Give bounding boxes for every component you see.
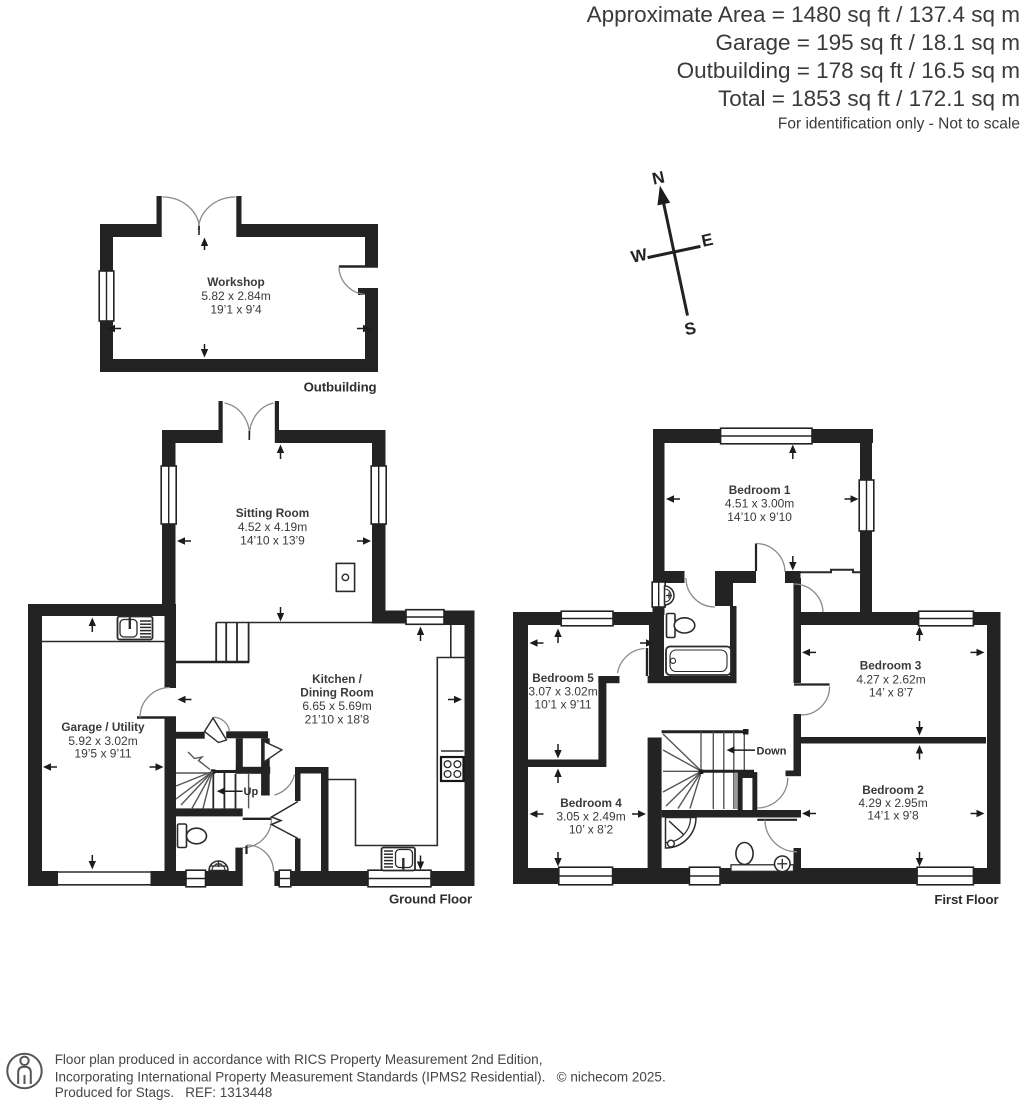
- svg-text:Incorporating International Pr: Incorporating International Property Mea…: [55, 1069, 666, 1084]
- svg-text:Down: Down: [757, 746, 787, 758]
- svg-text:10’ x 8’2: 10’ x 8’2: [569, 823, 614, 837]
- svg-text:Outbuilding: Outbuilding: [304, 380, 377, 395]
- svg-text:Ground Floor: Ground Floor: [389, 892, 472, 907]
- svg-text:Workshop: Workshop: [207, 275, 264, 289]
- svg-text:6.65 x 5.69m: 6.65 x 5.69m: [302, 699, 371, 713]
- svg-text:Garage = 195 sq ft / 18.1 sq m: Garage = 195 sq ft / 18.1 sq m: [715, 30, 1020, 55]
- svg-text:Approximate Area = 1480 sq ft: Approximate Area = 1480 sq ft / 137.4 sq…: [587, 2, 1020, 27]
- svg-text:Dining Room: Dining Room: [300, 686, 373, 700]
- svg-text:19’5 x 9’11: 19’5 x 9’11: [74, 747, 131, 761]
- svg-text:4.52 x 4.19m: 4.52 x 4.19m: [238, 520, 307, 534]
- svg-text:19’1 x 9’4: 19’1 x 9’4: [210, 303, 262, 317]
- svg-text:14’ x 8’7: 14’ x 8’7: [869, 686, 914, 700]
- svg-text:Up: Up: [244, 786, 259, 798]
- svg-text:First Floor: First Floor: [934, 892, 998, 907]
- svg-text:5.82 x 2.84m: 5.82 x 2.84m: [201, 289, 270, 303]
- svg-text:14’10 x 13’9: 14’10 x 13’9: [240, 534, 305, 548]
- svg-text:Kitchen /: Kitchen /: [312, 672, 363, 686]
- svg-text:Produced for Stags. REF: 131: Produced for Stags. REF: 1313448: [55, 1085, 273, 1100]
- svg-text:Sitting Room: Sitting Room: [236, 506, 309, 520]
- svg-text:Total = 1853 sq ft / 172.1 sq: Total = 1853 sq ft / 172.1 sq m: [718, 86, 1020, 111]
- svg-text:Bedroom 1: Bedroom 1: [729, 483, 791, 497]
- svg-text:For identification only - Not: For identification only - Not to scale: [778, 116, 1020, 133]
- svg-text:14’1 x 9’8: 14’1 x 9’8: [867, 809, 919, 823]
- svg-text:3.05 x 2.49m: 3.05 x 2.49m: [556, 810, 625, 824]
- svg-text:4.51 x 3.00m: 4.51 x 3.00m: [725, 497, 794, 511]
- svg-text:Floor plan produced in accorda: Floor plan produced in accordance with R…: [55, 1052, 543, 1067]
- svg-text:Bedroom 5: Bedroom 5: [532, 671, 594, 685]
- svg-text:Bedroom 2: Bedroom 2: [862, 783, 924, 797]
- svg-text:21’10 x 18’8: 21’10 x 18’8: [305, 713, 370, 727]
- svg-text:3.07 x 3.02m: 3.07 x 3.02m: [528, 685, 597, 699]
- svg-text:14’10 x 9’10: 14’10 x 9’10: [727, 510, 792, 524]
- svg-text:Bedroom 4: Bedroom 4: [560, 796, 622, 810]
- svg-text:Bedroom 3: Bedroom 3: [860, 659, 922, 673]
- svg-text:10’1 x 9’11: 10’1 x 9’11: [534, 698, 591, 712]
- svg-text:Outbuilding = 178 sq ft / 16.5: Outbuilding = 178 sq ft / 16.5 sq m: [677, 58, 1020, 83]
- svg-text:Garage / Utility: Garage / Utility: [61, 720, 145, 734]
- svg-text:4.27 x 2.62m: 4.27 x 2.62m: [856, 673, 925, 687]
